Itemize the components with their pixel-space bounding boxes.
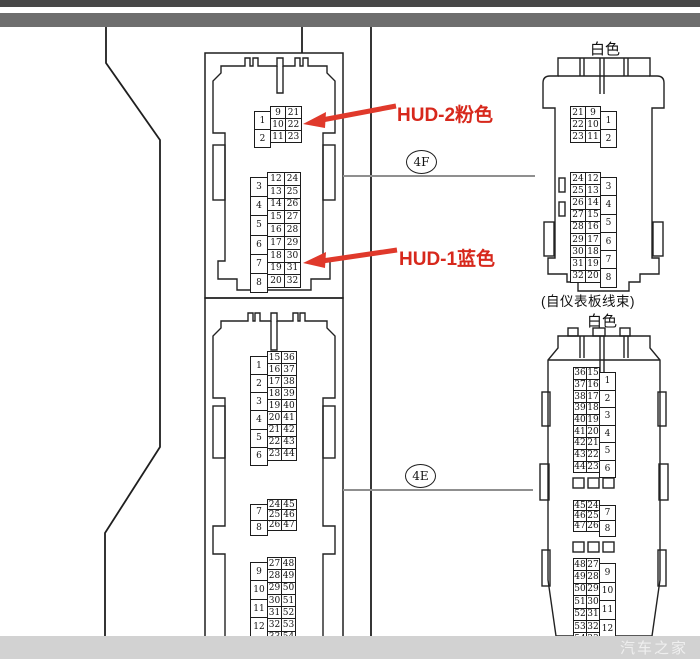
pinblock-white-bottom-mid: 45464724252678 <box>573 500 616 537</box>
pin-column: 151617181920212223 <box>267 351 282 461</box>
pin-18: 18 <box>267 249 285 263</box>
pin-2: 2 <box>600 129 617 148</box>
pin-10: 10 <box>250 580 268 599</box>
pinblock-white-bottom-lower: 48495051525354272829303132339101112 <box>573 558 616 646</box>
pin-8: 8 <box>250 273 268 293</box>
pin-8: 8 <box>250 520 268 537</box>
pin-27: 27 <box>267 557 282 570</box>
pinblock-white-top-lower: 2425262728293031321213141516171819203456… <box>570 172 617 288</box>
callout-4f: 4F <box>406 150 437 174</box>
pin-23: 23 <box>267 448 282 461</box>
label-harness-note: (自仪表板线束) <box>541 290 635 310</box>
pin-column: 212223 <box>285 106 302 143</box>
label-hud1: HUD-1蓝色 <box>399 244 495 271</box>
pin-11: 11 <box>585 130 601 143</box>
pinblock-main-left-top: 1234561516171819202122233637383940414243… <box>250 351 297 466</box>
pin-11: 11 <box>599 600 616 620</box>
pinblock-white-bottom-upper: 3637383940414243441516171819202122231234… <box>573 367 616 478</box>
pin-column-tall: 345678 <box>600 177 617 288</box>
pin-column-tall: 78 <box>599 505 616 537</box>
pin-9: 9 <box>599 563 616 583</box>
pin-27: 27 <box>586 558 600 571</box>
pin-29: 29 <box>267 582 282 595</box>
pin-51: 51 <box>281 594 296 607</box>
pin-52: 52 <box>573 608 587 621</box>
pin-6: 6 <box>599 460 616 479</box>
pin-7: 7 <box>600 250 617 269</box>
pin-7: 7 <box>599 505 616 521</box>
pin-23: 23 <box>285 130 302 143</box>
pin-column: 454647 <box>281 499 297 531</box>
pin-53: 53 <box>281 618 296 631</box>
pin-column: 242526 <box>586 500 600 532</box>
pin-48: 48 <box>281 557 296 570</box>
pin-6: 6 <box>250 235 268 255</box>
pin-5: 5 <box>250 429 268 448</box>
pinblock-hud-left-top: 1291011212223 <box>254 106 302 148</box>
pin-3: 3 <box>599 407 616 426</box>
pin-4: 4 <box>250 410 268 429</box>
hud1-arrow-icon <box>303 250 397 268</box>
pin-16: 16 <box>267 223 285 237</box>
pin-32: 32 <box>570 270 586 283</box>
pin-30: 30 <box>586 595 600 608</box>
pin-25: 25 <box>284 185 301 199</box>
pin-32: 32 <box>267 618 282 631</box>
pinblock-hud-left-bottom: 3456781213141516171819202425262728293031… <box>250 172 301 293</box>
top-bar-dark <box>0 0 700 7</box>
pinblock-main-left-bottom: 91011122728293031323348495051525354 <box>250 557 296 644</box>
pin-column-tall: 78 <box>250 504 268 536</box>
pin-28: 28 <box>267 569 282 582</box>
hud2-arrow-icon <box>303 106 396 128</box>
pin-column: 27282930313233 <box>267 557 282 644</box>
pin-column: 27282930313233 <box>586 558 600 646</box>
pin-3: 3 <box>250 392 268 411</box>
pin-7: 7 <box>250 254 268 274</box>
pin-column-tall: 123456 <box>599 372 616 478</box>
pin-44: 44 <box>573 461 587 474</box>
pin-column: 48495051525354 <box>573 558 587 646</box>
pin-20: 20 <box>585 270 601 283</box>
pin-31: 31 <box>267 606 282 619</box>
label-white-top: 白色 <box>575 38 635 59</box>
pin-48: 48 <box>573 558 587 571</box>
pin-4: 4 <box>250 196 268 216</box>
pin-26: 26 <box>267 520 282 531</box>
pin-23: 23 <box>570 130 586 143</box>
pin-3: 3 <box>250 177 268 197</box>
pin-17: 17 <box>267 236 285 250</box>
pin-10: 10 <box>599 582 616 602</box>
pin-32: 32 <box>284 274 301 288</box>
pin-11: 11 <box>250 599 268 618</box>
pin-28: 28 <box>586 570 600 583</box>
pin-12: 12 <box>267 172 285 186</box>
pin-2: 2 <box>254 129 271 148</box>
pin-51: 51 <box>573 595 587 608</box>
pin-30: 30 <box>284 249 301 263</box>
pin-28: 28 <box>284 223 301 237</box>
watermark: 汽车之家 <box>620 637 688 658</box>
pin-19: 19 <box>267 262 285 276</box>
top-bar-gray <box>0 13 700 27</box>
pin-14: 14 <box>267 198 285 212</box>
pin-column-tall: 12 <box>254 111 271 148</box>
pin-44: 44 <box>281 448 297 461</box>
pin-column-tall: 9101112 <box>599 563 616 638</box>
pin-24: 24 <box>284 172 301 186</box>
pin-11: 11 <box>270 130 286 143</box>
pin-23: 23 <box>586 461 600 474</box>
pin-31: 31 <box>586 608 600 621</box>
pin-column: 454647 <box>573 500 587 532</box>
pin-7: 7 <box>250 504 268 521</box>
pin-2: 2 <box>599 390 616 409</box>
pin-3: 3 <box>600 177 617 196</box>
pin-26: 26 <box>284 198 301 212</box>
pin-53: 53 <box>573 620 587 633</box>
pin-8: 8 <box>599 520 616 536</box>
pin-column: 363738394041424344 <box>573 367 587 473</box>
pin-30: 30 <box>267 594 282 607</box>
pin-column: 121314151617181920 <box>585 172 601 283</box>
pinblock-white-top-upper: 2122239101112 <box>570 106 617 148</box>
pin-31: 31 <box>284 262 301 276</box>
pin-1: 1 <box>254 111 271 130</box>
pin-column: 151617181920212223 <box>586 367 600 473</box>
pin-13: 13 <box>267 185 285 199</box>
pin-20: 20 <box>267 274 285 288</box>
pin-column: 242526272829303132 <box>284 172 301 288</box>
pin-6: 6 <box>600 232 617 251</box>
pin-27: 27 <box>284 210 301 224</box>
pin-column-tall: 123456 <box>250 356 268 466</box>
pin-6: 6 <box>250 447 268 466</box>
pin-5: 5 <box>250 215 268 235</box>
pin-1: 1 <box>250 356 268 375</box>
pin-47: 47 <box>573 521 587 532</box>
pin-5: 5 <box>599 442 616 461</box>
pinblock-main-left-mid: 78242526454647 <box>250 499 297 536</box>
pin-50: 50 <box>281 582 296 595</box>
pin-8: 8 <box>600 268 617 287</box>
pin-50: 50 <box>573 583 587 596</box>
pin-column: 91011 <box>585 106 601 143</box>
pin-32: 32 <box>586 620 600 633</box>
pin-column: 242526272829303132 <box>570 172 586 283</box>
pin-26: 26 <box>586 521 600 532</box>
pin-1: 1 <box>600 111 617 130</box>
pin-49: 49 <box>281 569 296 582</box>
pin-column-tall: 345678 <box>250 177 268 293</box>
label-white-bottom: 白色 <box>572 310 632 331</box>
pin-2: 2 <box>250 374 268 393</box>
pin-column: 91011 <box>270 106 286 143</box>
label-hud2: HUD-2粉色 <box>397 100 493 127</box>
pin-column: 48495051525354 <box>281 557 296 644</box>
bottom-bar: 汽车之家 <box>0 636 700 659</box>
pin-column: 363738394041424344 <box>281 351 297 461</box>
pin-1: 1 <box>599 372 616 391</box>
pin-49: 49 <box>573 570 587 583</box>
pin-15: 15 <box>267 210 285 224</box>
pin-4: 4 <box>599 425 616 444</box>
pin-column: 212223 <box>570 106 586 143</box>
pin-column-tall: 9101112 <box>250 562 268 637</box>
wiring-diagram-page: 1291011212223 34567812131415161718192024… <box>0 0 700 659</box>
pin-29: 29 <box>586 583 600 596</box>
pin-5: 5 <box>600 214 617 233</box>
pin-4: 4 <box>600 195 617 214</box>
pin-column: 121314151617181920 <box>267 172 285 288</box>
callout-4e: 4E <box>405 464 436 488</box>
pin-47: 47 <box>281 520 297 531</box>
pin-column: 242526 <box>267 499 282 531</box>
pin-9: 9 <box>250 562 268 581</box>
pin-column-tall: 12 <box>600 111 617 148</box>
pin-29: 29 <box>284 236 301 250</box>
pin-52: 52 <box>281 606 296 619</box>
pin-12: 12 <box>250 617 268 636</box>
